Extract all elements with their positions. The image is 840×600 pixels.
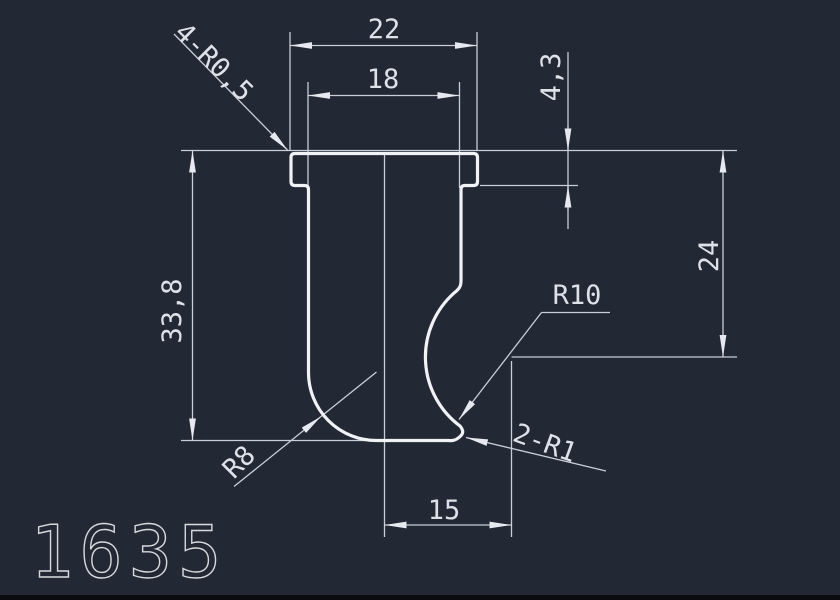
cad-drawing-canvas[interactable]: 1635 22 18 4,3 24 33,8 15 R10 R8 2-R1 4-… <box>0 0 840 600</box>
dim-label-flange-width: 22 <box>339 14 429 44</box>
dim-label-arc-center-height: 24 <box>694 211 724 301</box>
dim-label-body-width: 18 <box>338 64 428 94</box>
dim-label-overall-height: 33,8 <box>157 266 187 356</box>
radius-label-r10: R10 <box>532 280 622 310</box>
leader-r10 <box>459 313 542 420</box>
bottom-edge-bar <box>0 595 840 600</box>
dim-label-flange-thickness: 4,3 <box>536 32 566 122</box>
dim-label-arc-center-offset: 15 <box>399 495 489 525</box>
part-number-text: 1635 <box>30 510 227 594</box>
leader-r8-tail <box>321 372 377 417</box>
